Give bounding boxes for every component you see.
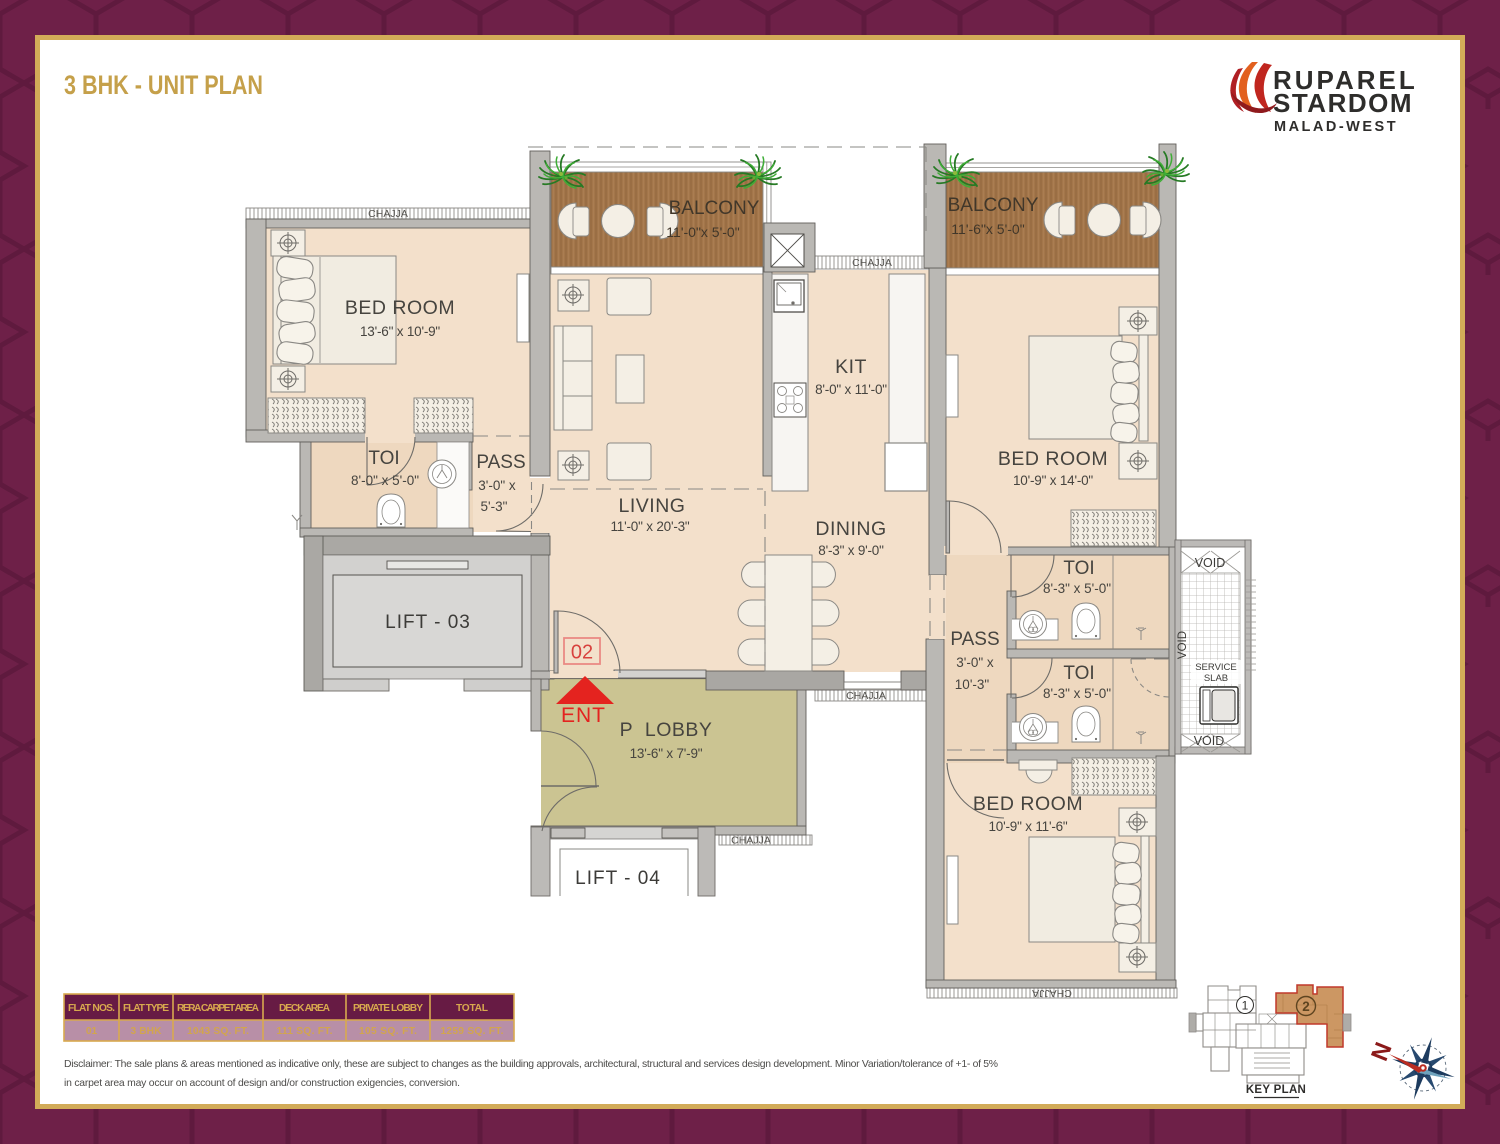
svg-text:10'-3": 10'-3" bbox=[955, 677, 990, 692]
svg-text:FLAT TYPE: FLAT TYPE bbox=[123, 1003, 169, 1014]
svg-text:2: 2 bbox=[1302, 999, 1310, 1014]
svg-text:1: 1 bbox=[1242, 999, 1249, 1013]
svg-text:Disclaimer: The sale plans & a: Disclaimer: The sale plans & areas menti… bbox=[64, 1059, 998, 1070]
svg-text:BALCONY: BALCONY bbox=[948, 195, 1039, 216]
svg-text:PRIVATE LOBBY: PRIVATE LOBBY bbox=[353, 1003, 423, 1014]
svg-text:01: 01 bbox=[86, 1026, 98, 1037]
svg-text:PASS: PASS bbox=[476, 452, 525, 473]
svg-text:BED ROOM: BED ROOM bbox=[973, 793, 1083, 815]
svg-text:CHAJJA: CHAJJA bbox=[846, 690, 886, 702]
svg-text:3'-0" x: 3'-0" x bbox=[478, 478, 516, 493]
svg-text:CHAJJA: CHAJJA bbox=[368, 208, 408, 220]
svg-text:VOID: VOID bbox=[1194, 734, 1225, 748]
svg-text:TOI: TOI bbox=[368, 448, 399, 469]
svg-text:SERVICE: SERVICE bbox=[1195, 662, 1237, 673]
svg-text:RERA CARPET AREA: RERA CARPET AREA bbox=[177, 1003, 260, 1014]
svg-text:BALCONY: BALCONY bbox=[669, 198, 760, 219]
svg-text:1259 SQ. FT.: 1259 SQ. FT. bbox=[441, 1026, 504, 1037]
svg-text:10'-9" x 14'-0": 10'-9" x 14'-0" bbox=[1013, 473, 1093, 488]
svg-text:10'-9" x 11'-6": 10'-9" x 11'-6" bbox=[988, 819, 1067, 834]
svg-text:ENT: ENT bbox=[561, 704, 606, 727]
svg-text:CHAJJA: CHAJJA bbox=[1032, 987, 1072, 999]
svg-text:13'-6" x 10'-9": 13'-6" x 10'-9" bbox=[360, 324, 440, 339]
svg-text:13'-6" x 7'-9": 13'-6" x 7'-9" bbox=[630, 746, 703, 761]
svg-text:KIT: KIT bbox=[835, 356, 867, 378]
svg-text:111 SQ. FT.: 111 SQ. FT. bbox=[277, 1026, 333, 1037]
svg-text:VOID: VOID bbox=[1195, 556, 1226, 570]
svg-text:LIFT - 03: LIFT - 03 bbox=[385, 612, 471, 633]
svg-text:VOID: VOID bbox=[1177, 631, 1189, 659]
svg-text:KEY PLAN: KEY PLAN bbox=[1246, 1084, 1306, 1096]
svg-text:LIVING: LIVING bbox=[619, 495, 686, 517]
svg-text:11'-0" x 20'-3": 11'-0" x 20'-3" bbox=[610, 519, 689, 534]
svg-text:TOI: TOI bbox=[1063, 663, 1094, 684]
svg-text:MALAD-WEST: MALAD-WEST bbox=[1274, 119, 1398, 135]
svg-text:LIFT - 04: LIFT - 04 bbox=[575, 868, 661, 889]
svg-text:105 SQ. FT.: 105 SQ. FT. bbox=[359, 1026, 417, 1037]
svg-text:BED ROOM: BED ROOM bbox=[998, 448, 1108, 470]
svg-text:02: 02 bbox=[571, 642, 593, 664]
svg-text:8'-0" x 11'-0": 8'-0" x 11'-0" bbox=[815, 382, 887, 397]
svg-text:TOI: TOI bbox=[1063, 558, 1094, 579]
svg-text:11'-0"x 5'-0": 11'-0"x 5'-0" bbox=[666, 224, 739, 240]
svg-text:STARDOM: STARDOM bbox=[1273, 88, 1413, 118]
svg-text:SLAB: SLAB bbox=[1204, 673, 1228, 684]
svg-text:DINING: DINING bbox=[815, 518, 886, 540]
svg-text:CHAJJA: CHAJJA bbox=[731, 835, 771, 847]
svg-text:in carpet area may occur on ac: in carpet area may occur on account of d… bbox=[64, 1078, 460, 1089]
svg-text:3'-0" x: 3'-0" x bbox=[956, 655, 994, 670]
svg-text:BED ROOM: BED ROOM bbox=[345, 297, 455, 319]
svg-text:DECK AREA: DECK AREA bbox=[279, 1003, 331, 1014]
svg-text:TOTAL: TOTAL bbox=[456, 1003, 488, 1014]
svg-text:P LOBBY: P LOBBY bbox=[620, 719, 713, 741]
svg-text:FLAT NOS.: FLAT NOS. bbox=[68, 1003, 115, 1014]
svg-text:8'-3" x 9'-0": 8'-3" x 9'-0" bbox=[818, 543, 884, 558]
svg-text:8'-3" x 5'-0": 8'-3" x 5'-0" bbox=[1043, 686, 1111, 701]
svg-text:8'-3" x 5'-0": 8'-3" x 5'-0" bbox=[1043, 581, 1111, 596]
svg-text:8'-0" x 5'-0": 8'-0" x 5'-0" bbox=[351, 473, 419, 488]
svg-text:11'-6"x 5'-0": 11'-6"x 5'-0" bbox=[951, 221, 1024, 237]
svg-text:3 BHK: 3 BHK bbox=[131, 1026, 163, 1037]
svg-text:PASS: PASS bbox=[950, 629, 999, 650]
svg-text:5'-3": 5'-3" bbox=[481, 499, 508, 514]
svg-text:3 BHK - UNIT PLAN: 3 BHK - UNIT PLAN bbox=[64, 70, 263, 100]
svg-text:1043 SQ. FT.: 1043 SQ. FT. bbox=[187, 1026, 249, 1037]
svg-text:CHAJJA: CHAJJA bbox=[852, 257, 892, 269]
